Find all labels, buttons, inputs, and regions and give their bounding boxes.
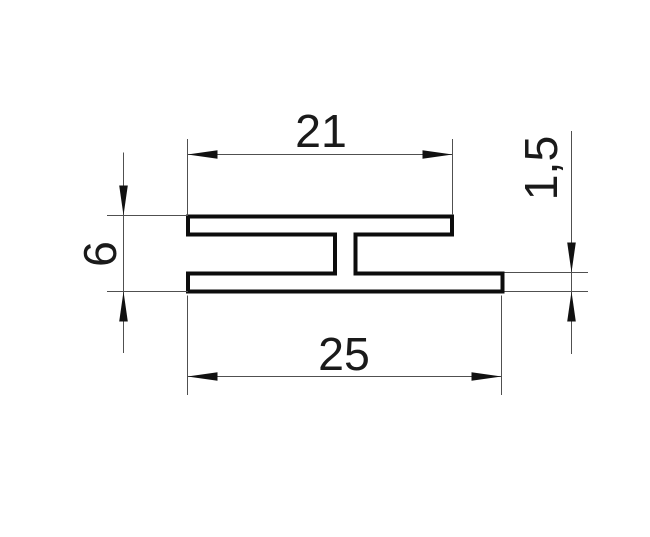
svg-text:6: 6 [74,241,126,267]
svg-text:1,5: 1,5 [515,136,567,201]
svg-text:25: 25 [318,328,370,380]
svg-text:21: 21 [295,105,347,157]
